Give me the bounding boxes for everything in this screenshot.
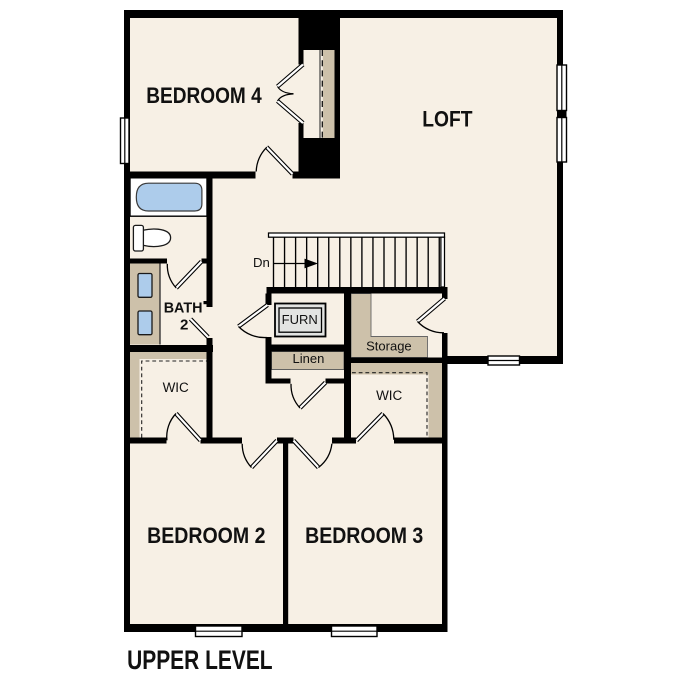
svg-text:BEDROOM 4: BEDROOM 4: [146, 83, 262, 108]
svg-text:FURN: FURN: [282, 312, 318, 327]
svg-text:BEDROOM 3: BEDROOM 3: [305, 523, 423, 548]
svg-text:BEDROOM 2: BEDROOM 2: [147, 523, 265, 548]
svg-text:WIC: WIC: [376, 388, 402, 403]
svg-text:LOFT: LOFT: [422, 107, 473, 132]
svg-text:Linen: Linen: [292, 351, 324, 366]
svg-text:WIC: WIC: [163, 380, 189, 395]
svg-text:BATH: BATH: [164, 300, 203, 317]
svg-text:2: 2: [180, 317, 188, 334]
svg-text:Storage: Storage: [366, 338, 412, 353]
svg-text:UPPER LEVEL: UPPER LEVEL: [127, 645, 273, 675]
svg-text:Dn: Dn: [253, 255, 270, 270]
